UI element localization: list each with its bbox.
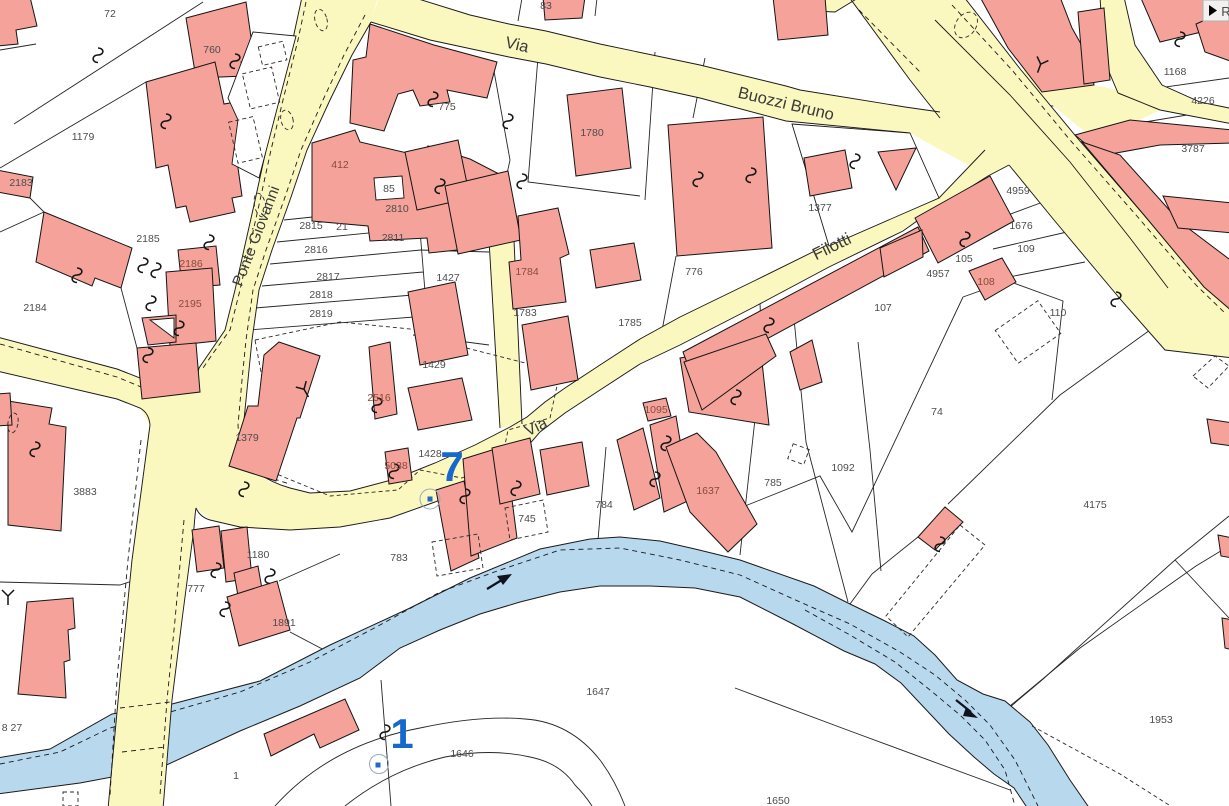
- svg-text:1092: 1092: [831, 462, 855, 474]
- svg-text:1428: 1428: [418, 448, 442, 460]
- svg-text:1891: 1891: [272, 617, 296, 629]
- svg-text:3883: 3883: [73, 486, 97, 498]
- svg-text:785: 785: [764, 477, 782, 489]
- svg-text:3787: 3787: [1181, 143, 1205, 155]
- svg-text:1953: 1953: [1149, 714, 1173, 726]
- svg-text:2810: 2810: [385, 203, 409, 215]
- svg-text:2811: 2811: [382, 232, 405, 244]
- svg-text:2186: 2186: [179, 258, 203, 270]
- svg-text:1785: 1785: [618, 317, 642, 329]
- svg-text:2816: 2816: [304, 244, 328, 256]
- svg-text:1676: 1676: [1009, 220, 1033, 232]
- svg-text:1783: 1783: [513, 307, 537, 319]
- svg-text:776: 776: [685, 266, 703, 278]
- svg-text:745: 745: [518, 513, 536, 525]
- svg-text:1784: 1784: [515, 266, 539, 278]
- svg-text:1637: 1637: [696, 485, 720, 497]
- svg-text:2819: 2819: [309, 308, 333, 320]
- svg-text:85: 85: [383, 183, 395, 195]
- svg-text:1650: 1650: [766, 795, 790, 806]
- svg-text:1379: 1379: [235, 432, 259, 444]
- svg-text:775: 775: [438, 101, 456, 113]
- svg-text:1095: 1095: [644, 404, 668, 416]
- svg-text:110: 110: [1050, 307, 1067, 319]
- svg-text:7: 7: [440, 443, 463, 490]
- svg-text:1179: 1179: [72, 131, 95, 143]
- svg-text:83: 83: [540, 0, 552, 12]
- svg-text:4957: 4957: [926, 268, 950, 280]
- svg-text:1: 1: [390, 710, 413, 757]
- svg-text:108: 108: [977, 276, 995, 288]
- svg-text:2195: 2195: [178, 298, 202, 310]
- svg-text:1427: 1427: [436, 272, 460, 284]
- svg-text:2818: 2818: [309, 289, 333, 301]
- svg-text:1: 1: [233, 770, 239, 782]
- svg-text:1168: 1168: [1164, 66, 1187, 78]
- svg-text:5038: 5038: [384, 460, 408, 472]
- svg-text:412: 412: [331, 159, 349, 171]
- svg-text:1429: 1429: [422, 359, 446, 371]
- svg-text:2516: 2516: [367, 392, 391, 404]
- svg-text:783: 783: [390, 552, 408, 564]
- svg-text:1377: 1377: [808, 202, 832, 214]
- svg-text:R: R: [1221, 4, 1229, 19]
- svg-text:72: 72: [104, 8, 116, 20]
- svg-text:1647: 1647: [586, 686, 610, 698]
- svg-text:2184: 2184: [23, 302, 47, 314]
- svg-text:109: 109: [1017, 243, 1035, 255]
- svg-text:105: 105: [955, 253, 973, 265]
- svg-text:8 27: 8 27: [2, 722, 23, 734]
- svg-text:4959: 4959: [1006, 185, 1030, 197]
- svg-text:2185: 2185: [136, 233, 160, 245]
- svg-text:1646: 1646: [450, 748, 474, 760]
- svg-text:74: 74: [931, 406, 943, 418]
- svg-text:4226: 4226: [1191, 95, 1215, 107]
- svg-text:1780: 1780: [580, 127, 604, 139]
- svg-text:777: 777: [187, 583, 205, 595]
- svg-text:2817: 2817: [316, 271, 340, 283]
- svg-text:760: 760: [203, 44, 221, 56]
- svg-text:4175: 4175: [1083, 499, 1107, 511]
- svg-text:2815: 2815: [299, 220, 323, 232]
- svg-text:784: 784: [595, 499, 613, 511]
- svg-text:2183: 2183: [9, 177, 33, 189]
- svg-text:107: 107: [874, 302, 892, 314]
- svg-text:1180: 1180: [247, 549, 270, 561]
- svg-text:21: 21: [336, 221, 348, 233]
